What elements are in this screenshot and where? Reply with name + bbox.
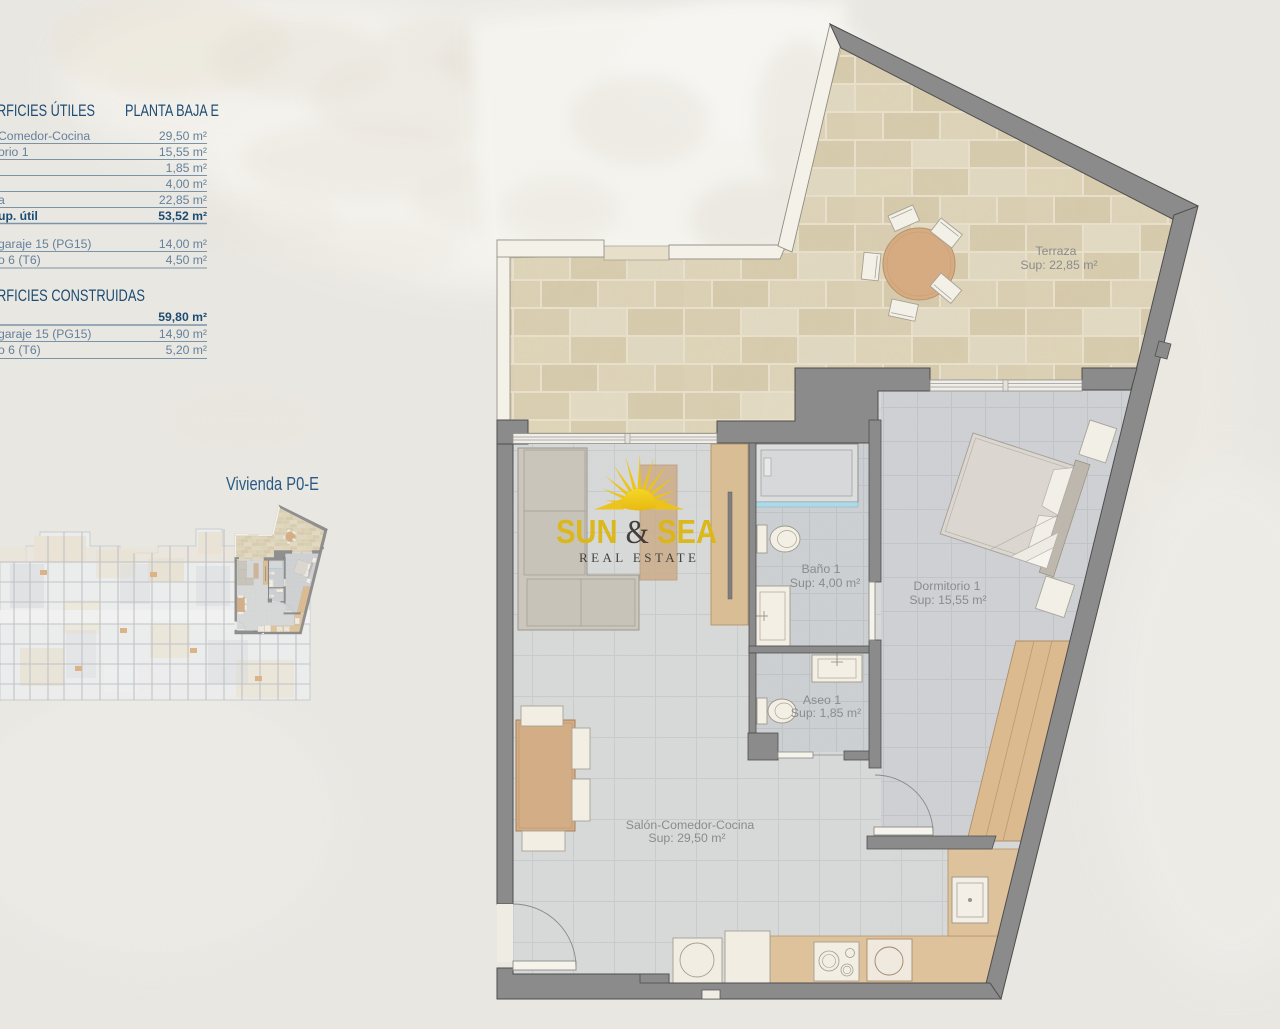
- svg-text:14,00 m²: 14,00 m²: [159, 237, 207, 251]
- svg-text:REAL ESTATE: REAL ESTATE: [579, 550, 701, 565]
- svg-text:RFICIES CONSTRUIDAS: RFICIES CONSTRUIDAS: [0, 287, 145, 305]
- svg-text:up. útil: up. útil: [0, 209, 38, 223]
- svg-text:Salón-Comedor-Cocina: Salón-Comedor-Cocina: [626, 818, 755, 832]
- svg-text:59,80 m²: 59,80 m²: [158, 310, 207, 324]
- svg-text:Dormitorio 1: Dormitorio 1: [914, 579, 981, 593]
- svg-text:22,85 m²: 22,85 m²: [159, 193, 207, 207]
- svg-text:Baño 1: Baño 1: [802, 562, 841, 576]
- svg-text:Comedor-Cocina: Comedor-Cocina: [0, 129, 90, 143]
- svg-text:garaje 15 (PG15): garaje 15 (PG15): [0, 237, 92, 251]
- svg-text:Terraza: Terraza: [1035, 244, 1076, 258]
- svg-text:Sup: 15,55 m²: Sup: 15,55 m²: [909, 593, 986, 607]
- svg-text:orio 1: orio 1: [0, 145, 29, 159]
- svg-text:a: a: [0, 193, 5, 207]
- svg-text:29,50 m²: 29,50 m²: [159, 129, 207, 143]
- svg-text:Sup: 1,85 m²: Sup: 1,85 m²: [791, 706, 861, 720]
- svg-text:Sup: 22,85 m²: Sup: 22,85 m²: [1020, 258, 1097, 272]
- svg-text:15,55 m²: 15,55 m²: [159, 145, 207, 159]
- svg-text:o 6 (T6): o 6 (T6): [0, 253, 41, 267]
- svg-text:RFICIES ÚTILES: RFICIES ÚTILES: [0, 101, 95, 120]
- svg-text:Sup: 4,00 m²: Sup: 4,00 m²: [790, 576, 860, 590]
- svg-text:Sup: 29,50 m²: Sup: 29,50 m²: [648, 831, 725, 845]
- svg-text:Vivienda P0-E: Vivienda P0-E: [226, 473, 319, 494]
- svg-text:5,20 m²: 5,20 m²: [166, 343, 207, 357]
- svg-text:SUN & SEA: SUN & SEA: [556, 513, 717, 551]
- svg-text:1,85 m²: 1,85 m²: [166, 161, 207, 175]
- svg-text:Aseo 1: Aseo 1: [803, 693, 841, 707]
- svg-text:4,00 m²: 4,00 m²: [166, 177, 207, 191]
- svg-text:14,90 m²: 14,90 m²: [159, 327, 207, 341]
- svg-text:o 6 (T6): o 6 (T6): [0, 343, 41, 357]
- svg-text:4,50 m²: 4,50 m²: [166, 253, 207, 267]
- svg-text:garaje 15 (PG15): garaje 15 (PG15): [0, 327, 92, 341]
- svg-text:53,52 m²: 53,52 m²: [158, 209, 207, 223]
- svg-text:PLANTA BAJA E: PLANTA BAJA E: [125, 102, 219, 120]
